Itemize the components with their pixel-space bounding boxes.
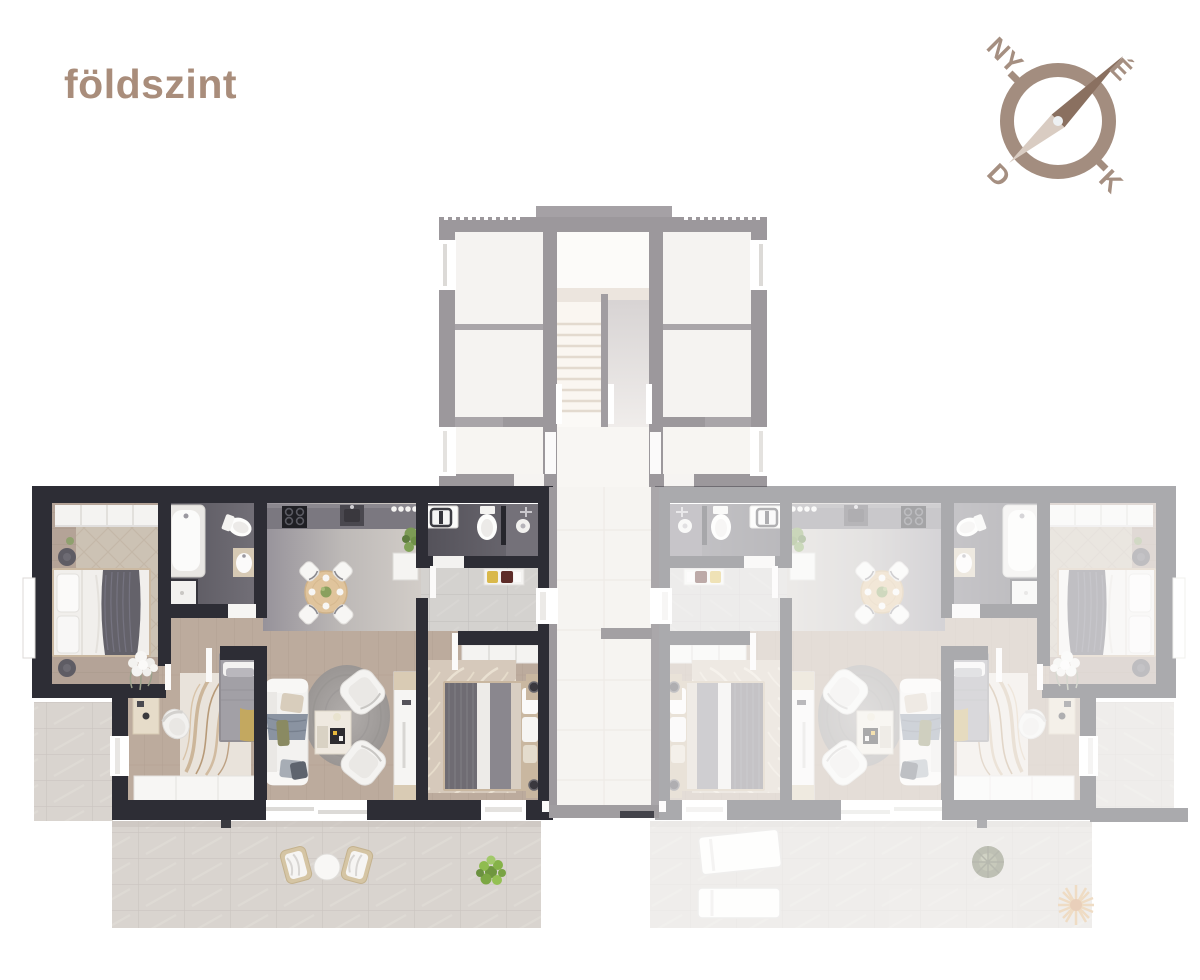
svg-text:földszint: földszint	[64, 61, 237, 107]
